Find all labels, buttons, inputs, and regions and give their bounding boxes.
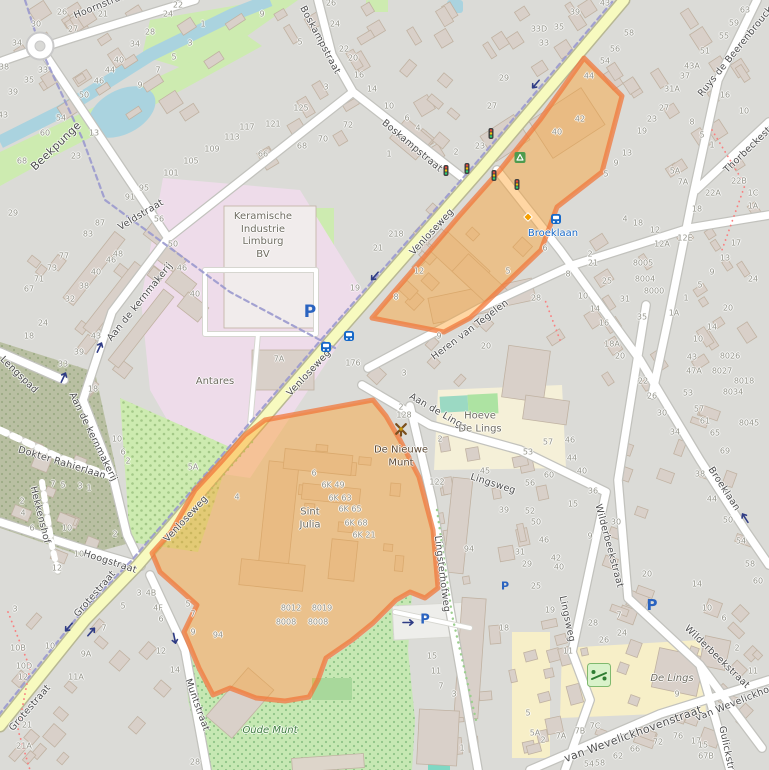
building: [531, 60, 548, 76]
building: [704, 599, 723, 618]
building: [545, 716, 564, 735]
building: [312, 81, 328, 100]
building: [417, 709, 460, 766]
building: [97, 33, 111, 46]
building: [710, 239, 721, 251]
building: [27, 255, 40, 268]
building: [439, 436, 451, 452]
map-canvas[interactable]: HoornstraatBeekpungeBoskampstraatBoskamp…: [0, 0, 769, 770]
building: [692, 354, 710, 370]
building: [729, 660, 748, 679]
building: [333, 130, 348, 146]
building: [657, 468, 675, 483]
building: [544, 668, 555, 679]
building: [602, 555, 618, 570]
building: [26, 613, 42, 630]
building: [693, 284, 707, 297]
building: [284, 24, 299, 44]
building: [465, 447, 480, 462]
building: [506, 32, 524, 50]
building: [180, 103, 199, 121]
building: [690, 417, 708, 428]
building: [502, 345, 551, 402]
building: [479, 691, 492, 701]
building: [737, 261, 750, 277]
building: [722, 470, 737, 487]
building: [699, 405, 720, 421]
building: [139, 642, 157, 660]
building: [690, 27, 713, 50]
building: [581, 648, 589, 656]
building: [492, 31, 510, 50]
building: [555, 633, 568, 645]
building: [109, 650, 130, 671]
building: [514, 6, 529, 21]
building: [536, 729, 548, 743]
building: [454, 374, 466, 386]
building: [498, 545, 515, 562]
building: [462, 576, 470, 585]
building: [53, 707, 68, 722]
building: [483, 42, 497, 59]
building: [547, 329, 565, 346]
map-base-layer: [0, 0, 769, 770]
building: [638, 254, 652, 270]
building: [407, 27, 422, 45]
building: [536, 485, 549, 501]
building: [594, 269, 614, 288]
building: [447, 108, 460, 120]
roundabout: [27, 33, 54, 60]
building: [492, 487, 501, 499]
building: [64, 681, 77, 694]
building: [664, 103, 680, 119]
building: [541, 618, 557, 629]
building: [680, 8, 698, 29]
building: [43, 724, 66, 748]
building: [297, 96, 316, 118]
building: [357, 30, 375, 45]
building: [24, 729, 40, 745]
building: [50, 254, 66, 271]
building: [713, 317, 725, 329]
building: [78, 334, 97, 354]
building: [737, 322, 757, 344]
building: [722, 259, 733, 271]
building: [728, 622, 745, 639]
building: [437, 73, 452, 88]
building: [427, 356, 440, 369]
building: [94, 636, 108, 650]
building: [698, 297, 708, 307]
building: [154, 680, 171, 697]
building: [602, 372, 615, 386]
building: [128, 716, 145, 734]
building: [400, 59, 417, 77]
building: [57, 752, 69, 765]
building: [489, 625, 501, 644]
building: [434, 28, 453, 48]
building: [635, 506, 649, 518]
building: [732, 605, 750, 623]
building: [650, 68, 668, 88]
building: [590, 233, 609, 251]
